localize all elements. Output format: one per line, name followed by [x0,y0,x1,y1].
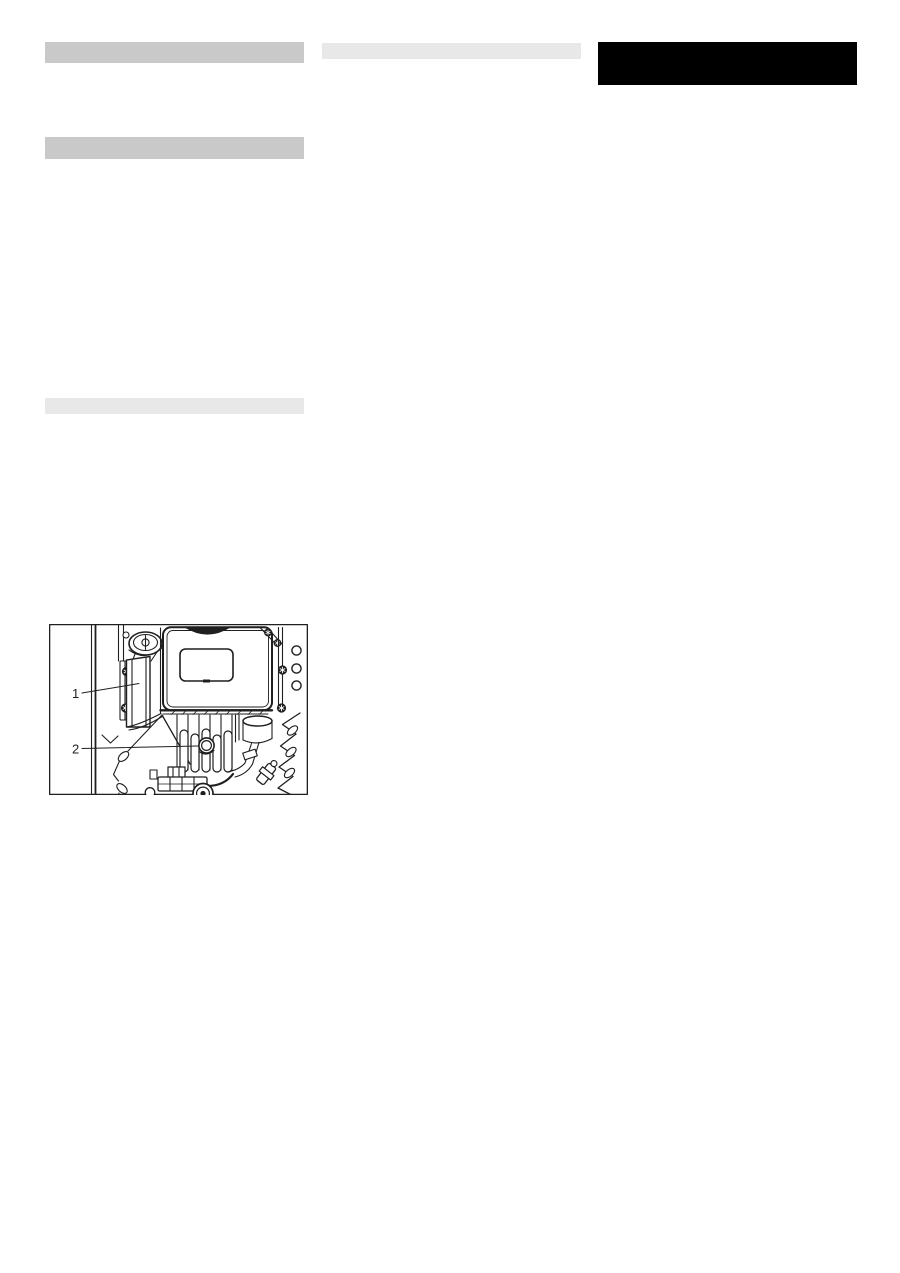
left-column-subheading-bar [45,398,304,414]
callout-1-label: 1 [72,686,79,701]
left-column-heading-bar-2 [45,137,304,159]
corner-screw-icon [264,629,271,636]
strip-screw-icon [277,704,285,712]
inspection-window [180,649,233,681]
left-column-heading-bar-1 [45,42,304,63]
corner-screw-icon [274,639,281,646]
panel-holes [292,646,301,690]
boiler-internals-figure: 1 2 [49,624,308,795]
boiler-internals-diagram: 1 2 [49,624,308,795]
callout-2-label: 2 [72,742,79,757]
chapter-title-block [598,42,857,85]
middle-column-subheading-bar [322,43,581,59]
strip-screw-icon [278,666,286,674]
document-page: 1 2 [0,0,900,1273]
drain-valve-component-2 [199,738,214,754]
burner-module-housing [161,627,273,714]
